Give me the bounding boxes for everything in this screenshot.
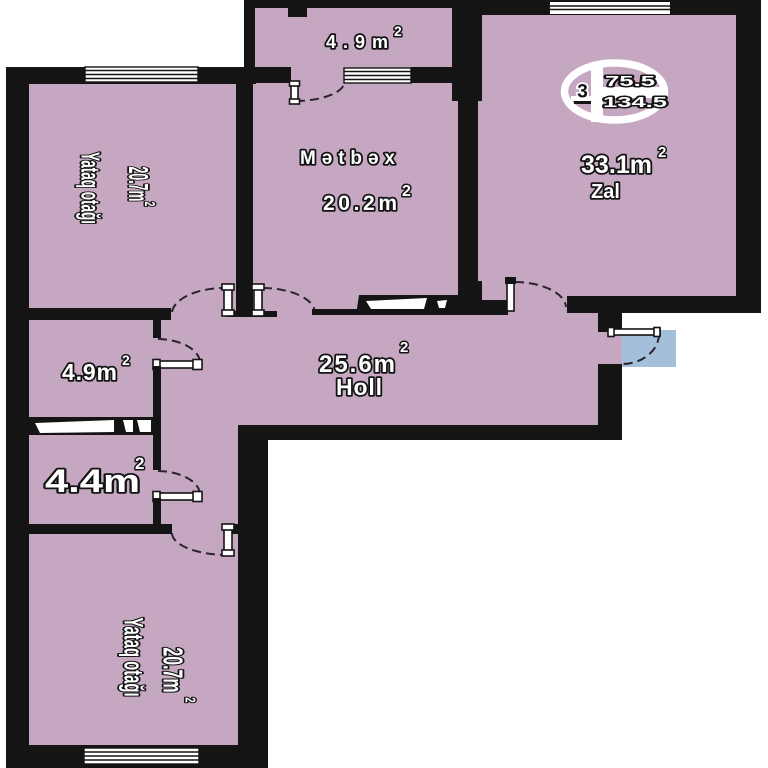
svg-text:Zal: Zal bbox=[591, 181, 620, 203]
svg-text:134.5: 134.5 bbox=[603, 94, 667, 111]
svg-text:2: 2 bbox=[142, 201, 159, 206]
svg-text:2: 2 bbox=[402, 183, 411, 200]
svg-text:2: 2 bbox=[122, 352, 130, 368]
svg-text:2: 2 bbox=[658, 144, 666, 161]
svg-text:2: 2 bbox=[400, 339, 408, 356]
svg-text:2: 2 bbox=[135, 454, 144, 473]
svg-text:Yataq otağı: Yataq otağı bbox=[119, 617, 150, 696]
svg-text:3: 3 bbox=[577, 82, 588, 103]
svg-text:2: 2 bbox=[394, 23, 402, 39]
svg-text:4.9m: 4.9m bbox=[326, 32, 388, 52]
svg-text:33.1m: 33.1m bbox=[581, 151, 652, 179]
svg-text:75.5: 75.5 bbox=[605, 73, 655, 90]
svg-text:2: 2 bbox=[182, 697, 199, 702]
svg-text:4.4m: 4.4m bbox=[45, 463, 140, 499]
svg-text:20.7m: 20.7m bbox=[158, 647, 190, 692]
svg-text:4.9m: 4.9m bbox=[62, 359, 117, 385]
svg-text:Holl: Holl bbox=[336, 374, 382, 400]
svg-text:20.7m: 20.7m bbox=[122, 167, 154, 202]
svg-text:Yataq otağı: Yataq otağı bbox=[75, 152, 104, 224]
